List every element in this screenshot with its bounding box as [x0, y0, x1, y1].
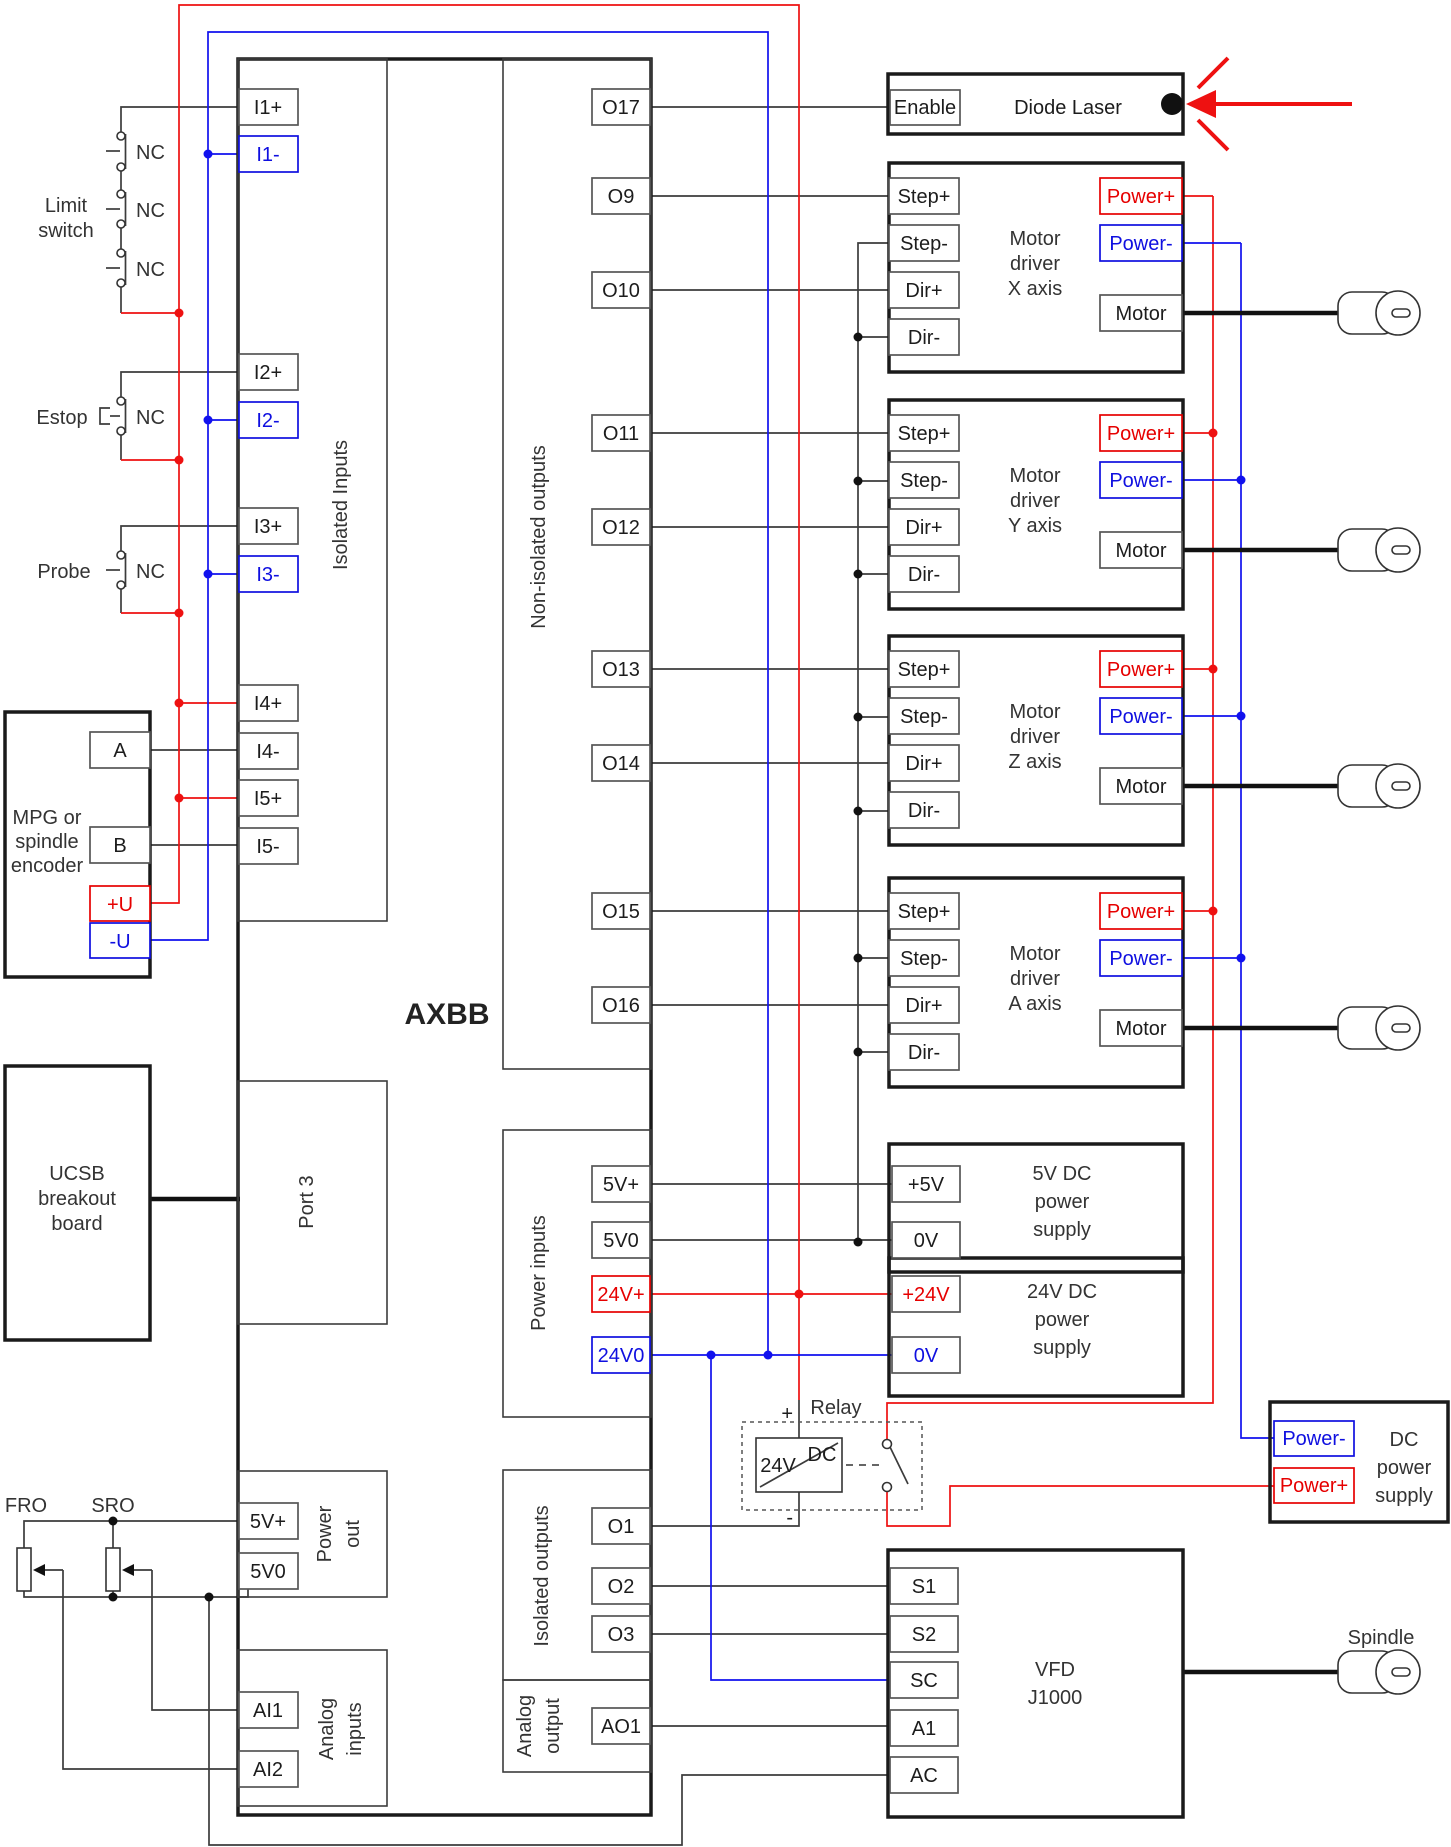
- wire-24v0-sc: [711, 1355, 890, 1680]
- terminal-x-dir-plus: Dir+: [889, 272, 959, 308]
- svg-text:Power-: Power-: [1109, 706, 1172, 728]
- svg-text:0V: 0V: [914, 1345, 939, 1367]
- driver-y-label: Motor: [1009, 465, 1060, 487]
- svg-text:24V+: 24V+: [597, 1284, 644, 1306]
- terminal-24v-supply-plus: +24V: [892, 1276, 960, 1312]
- spindle-motor-symbol: [1338, 1650, 1420, 1694]
- svg-text:B: B: [113, 835, 126, 857]
- motor-a-symbol: [1338, 1006, 1420, 1050]
- estop-label: Estop: [36, 407, 87, 429]
- svg-text:power: power: [1035, 1309, 1090, 1331]
- relay-coil-24v-label: 24V: [760, 1455, 796, 1477]
- svg-text:Power+: Power+: [1107, 659, 1175, 681]
- supply-24v-label: 24V DC: [1027, 1281, 1097, 1303]
- svg-text:encoder: encoder: [11, 855, 84, 877]
- svg-text:I4+: I4+: [254, 693, 282, 715]
- terminal-24v-supply-0v: 0V: [892, 1337, 960, 1373]
- svg-text:5V0: 5V0: [603, 1230, 639, 1252]
- svg-text:O10: O10: [602, 280, 640, 302]
- svg-text:O16: O16: [602, 995, 640, 1017]
- svg-text:I3+: I3+: [254, 516, 282, 538]
- svg-text:spindle: spindle: [15, 831, 78, 853]
- svg-text:O1: O1: [608, 1516, 635, 1538]
- terminal-i4-plus: I4+: [239, 685, 298, 721]
- terminal-z-step-minus: Step-: [889, 698, 959, 734]
- probe-switch-symbol: [106, 551, 126, 589]
- terminal-vfd-ac: AC: [890, 1757, 958, 1793]
- relay-label: Relay: [810, 1397, 861, 1419]
- diagram-svg: I1+ I1- I2+ I2- I3+ I3- I4+ I4- I5+ I5- …: [0, 0, 1451, 1847]
- terminal-y-dir-minus: Dir-: [889, 556, 959, 592]
- terminal-powerin-24v0: 24V0: [592, 1337, 650, 1373]
- terminal-i3-plus: I3+: [239, 508, 298, 544]
- terminal-i3-minus: I3-: [239, 556, 298, 592]
- terminal-z-power-plus: Power+: [1100, 651, 1182, 687]
- terminal-y-motor: Motor: [1100, 532, 1182, 568]
- terminal-z-step-plus: Step+: [889, 651, 959, 687]
- svg-text:supply: supply: [1375, 1485, 1433, 1507]
- svg-text:O15: O15: [602, 901, 640, 923]
- sro-potentiometer: [106, 1548, 134, 1591]
- terminal-mpg-uminus: -U: [90, 923, 150, 958]
- terminal-y-step-plus: Step+: [889, 415, 959, 451]
- relay-coil-dc-label: DC: [808, 1444, 837, 1466]
- svg-text:Enable: Enable: [894, 97, 956, 119]
- terminal-i4-minus: I4-: [239, 733, 298, 769]
- terminal-ai2: AI2: [239, 1751, 298, 1787]
- svg-text:Step+: Step+: [898, 423, 951, 445]
- svg-text:Step-: Step-: [900, 948, 948, 970]
- svg-text:S1: S1: [912, 1576, 936, 1598]
- svg-text:O2: O2: [608, 1576, 635, 1598]
- limit-switch-symbol: [106, 132, 126, 287]
- nc-label-1: NC: [136, 142, 165, 164]
- terminal-x-step-minus: Step-: [889, 225, 959, 261]
- terminal-5v-supply-plus: +5V: [892, 1166, 960, 1202]
- relay-plus-label: +: [781, 1403, 793, 1425]
- spindle-label: Spindle: [1348, 1627, 1415, 1649]
- wire-relay-coil-o1: [650, 1492, 799, 1526]
- terminal-o12: O12: [592, 509, 650, 545]
- terminal-i2-minus: I2-: [239, 402, 298, 438]
- svg-text:Dir-: Dir-: [908, 327, 940, 349]
- terminal-a-step-minus: Step-: [889, 940, 959, 976]
- svg-text:Step-: Step-: [900, 706, 948, 728]
- svg-text:output: output: [542, 1698, 564, 1754]
- terminal-mpg-b: B: [90, 827, 150, 863]
- svg-text:Step-: Step-: [900, 470, 948, 492]
- svg-text:O11: O11: [603, 423, 639, 445]
- terminal-a-step-plus: Step+: [889, 893, 959, 929]
- limit-switch-label: Limit: [45, 195, 88, 217]
- svg-text:AI2: AI2: [253, 1759, 283, 1781]
- svg-text:Step+: Step+: [898, 659, 951, 681]
- svg-text:Power-: Power-: [1109, 233, 1172, 255]
- svg-text:breakout: breakout: [38, 1188, 116, 1210]
- svg-text:J1000: J1000: [1028, 1687, 1083, 1709]
- section-label-power-inputs: Power inputs: [528, 1215, 550, 1331]
- svg-text:5V0: 5V0: [250, 1561, 286, 1583]
- wiring-diagram: I1+ I1- I2+ I2- I3+ I3- I4+ I4- I5+ I5- …: [0, 0, 1451, 1847]
- terminal-i1-plus: I1+: [239, 89, 298, 125]
- terminal-powerin-5v0: 5V0: [592, 1222, 650, 1258]
- terminal-ai1: AI1: [239, 1692, 298, 1728]
- terminal-dcsupply-power-minus: Power-: [1274, 1421, 1354, 1456]
- laser-beam-icon: [1161, 58, 1352, 150]
- svg-text:O13: O13: [602, 659, 640, 681]
- svg-text:Step-: Step-: [900, 233, 948, 255]
- terminal-y-power-plus: Power+: [1100, 415, 1182, 451]
- svg-text:Step+: Step+: [898, 901, 951, 923]
- wiper-arrow-icon: [33, 1564, 45, 1576]
- wire-i2p-estop: [121, 372, 240, 397]
- motor-x-symbol: [1338, 291, 1420, 335]
- terminal-i2-plus: I2+: [239, 354, 298, 390]
- terminal-ao1: AO1: [592, 1708, 650, 1744]
- svg-text:driver: driver: [1010, 968, 1060, 990]
- terminal-a-power-minus: Power-: [1100, 940, 1182, 976]
- terminal-a-power-plus: Power+: [1100, 893, 1182, 929]
- svg-text:O17: O17: [602, 97, 640, 119]
- section-label-port3: Port 3: [296, 1175, 318, 1228]
- terminal-powerin-5vplus: 5V+: [592, 1166, 650, 1202]
- terminal-o15: O15: [592, 893, 650, 929]
- svg-text:SC: SC: [910, 1670, 938, 1692]
- nc-label-2: NC: [136, 200, 165, 222]
- svg-text:I5-: I5-: [256, 836, 279, 858]
- svg-text:A: A: [113, 740, 127, 762]
- svg-text:O3: O3: [608, 1624, 635, 1646]
- svg-text:+5V: +5V: [908, 1174, 945, 1196]
- svg-text:Power-: Power-: [1109, 470, 1172, 492]
- svg-text:X axis: X axis: [1008, 278, 1062, 300]
- svg-text:AC: AC: [910, 1765, 938, 1787]
- contact-icon: [117, 132, 125, 140]
- driver-x-label: Motor: [1009, 228, 1060, 250]
- terminal-5v-supply-0v: 0V: [892, 1222, 960, 1258]
- svg-text:Power+: Power+: [1107, 423, 1175, 445]
- svg-text:Motor: Motor: [1115, 1018, 1166, 1040]
- estop-switch-symbol: [100, 397, 126, 435]
- terminal-vfd-s1: S1: [890, 1568, 958, 1604]
- terminal-o14: O14: [592, 745, 650, 781]
- terminal-o17: O17: [592, 89, 650, 125]
- terminal-a-dir-plus: Dir+: [889, 987, 959, 1023]
- svg-text:power: power: [1035, 1191, 1090, 1213]
- svg-text:Dir-: Dir-: [908, 1042, 940, 1064]
- relay-minus-label: -: [786, 1507, 793, 1529]
- svg-text:+24V: +24V: [902, 1284, 950, 1306]
- wire-relay-switch-out: [887, 1486, 1274, 1526]
- svg-text:Power+: Power+: [1107, 901, 1175, 923]
- svg-text:Y axis: Y axis: [1008, 515, 1062, 537]
- terminal-z-dir-minus: Dir-: [889, 792, 959, 828]
- svg-text:I1+: I1+: [254, 97, 282, 119]
- supply-5v-label: 5V DC: [1033, 1163, 1092, 1185]
- terminal-x-motor: Motor: [1100, 295, 1182, 331]
- terminal-o11: O11: [592, 415, 650, 451]
- fro-potentiometer: [17, 1548, 45, 1591]
- terminal-x-dir-minus: Dir-: [889, 319, 959, 355]
- nc-label-3: NC: [136, 259, 165, 281]
- svg-text:driver: driver: [1010, 253, 1060, 275]
- signal-wires: [24, 107, 892, 1845]
- terminal-laser-enable: Enable: [890, 90, 960, 125]
- terminal-vfd-a1: A1: [890, 1710, 958, 1746]
- svg-text:power: power: [1377, 1457, 1432, 1479]
- svg-text:Dir+: Dir+: [905, 995, 942, 1017]
- svg-text:Dir+: Dir+: [905, 280, 942, 302]
- svg-text:I2-: I2-: [256, 410, 279, 432]
- driver-a-label: Motor: [1009, 943, 1060, 965]
- terminal-y-dir-plus: Dir+: [889, 509, 959, 545]
- svg-text:Dir-: Dir-: [908, 800, 940, 822]
- svg-text:0V: 0V: [914, 1230, 939, 1252]
- terminal-z-power-minus: Power-: [1100, 698, 1182, 734]
- svg-text:O14: O14: [602, 753, 640, 775]
- svg-text:I4-: I4-: [256, 741, 279, 763]
- terminal-dcsupply-power-plus: Power+: [1274, 1468, 1354, 1503]
- svg-text:5V+: 5V+: [603, 1174, 639, 1196]
- terminal-x-power-plus: Power+: [1100, 178, 1182, 214]
- svg-text:Dir+: Dir+: [905, 517, 942, 539]
- terminal-y-step-minus: Step-: [889, 462, 959, 498]
- svg-text:supply: supply: [1033, 1337, 1091, 1359]
- terminal-o10: O10: [592, 272, 650, 308]
- board-title: AXBB: [404, 998, 489, 1031]
- svg-text:AO1: AO1: [601, 1716, 641, 1738]
- motor-y-symbol: [1338, 528, 1420, 572]
- svg-text:Motor: Motor: [1115, 776, 1166, 798]
- svg-text:AI1: AI1: [253, 1700, 283, 1722]
- svg-text:5V+: 5V+: [250, 1511, 286, 1533]
- section-label-isolated-outputs: Isolated outputs: [531, 1505, 553, 1646]
- driver-z-label: Motor: [1009, 701, 1060, 723]
- svg-text:inputs: inputs: [344, 1702, 366, 1755]
- power-negative-wires: [150, 32, 1274, 1680]
- svg-text:S2: S2: [912, 1624, 936, 1646]
- mpg-label: MPG or: [13, 807, 82, 829]
- svg-text:Power+: Power+: [1107, 186, 1175, 208]
- svg-text:I2+: I2+: [254, 362, 282, 384]
- terminal-powerin-24vplus: 24V+: [592, 1276, 650, 1312]
- vfd-label: VFD: [1035, 1659, 1075, 1681]
- probe-label: Probe: [37, 561, 90, 583]
- svg-text:I5+: I5+: [254, 788, 282, 810]
- svg-text:A1: A1: [912, 1718, 936, 1740]
- terminal-powerout-5v0: 5V0: [239, 1553, 298, 1589]
- svg-text:Dir+: Dir+: [905, 753, 942, 775]
- terminal-z-dir-plus: Dir+: [889, 745, 959, 781]
- svg-text:switch: switch: [38, 220, 94, 242]
- svg-text:Motor: Motor: [1115, 303, 1166, 325]
- estop-nc-label: NC: [136, 407, 165, 429]
- svg-text:-U: -U: [109, 931, 130, 953]
- terminal-x-power-minus: Power-: [1100, 225, 1182, 261]
- terminal-o13: O13: [592, 651, 650, 687]
- terminal-a-dir-minus: Dir-: [889, 1034, 959, 1070]
- svg-text:driver: driver: [1010, 490, 1060, 512]
- svg-text:I1-: I1-: [256, 144, 279, 166]
- diode-laser-label: Diode Laser: [1014, 97, 1122, 119]
- terminal-mpg-uplus: +U: [90, 886, 150, 921]
- motor-z-symbol: [1338, 764, 1420, 808]
- probe-nc-label: NC: [136, 561, 165, 583]
- svg-text:Step+: Step+: [898, 186, 951, 208]
- terminal-o3: O3: [592, 1616, 650, 1652]
- wire-i1p-limit: [121, 107, 240, 132]
- svg-text:supply: supply: [1033, 1219, 1091, 1241]
- svg-text:Dir-: Dir-: [908, 564, 940, 586]
- svg-text:+U: +U: [107, 894, 133, 916]
- sro-label: SRO: [91, 1495, 134, 1517]
- svg-text:driver: driver: [1010, 726, 1060, 748]
- wire-5vp-pots: [24, 1521, 240, 1548]
- terminal-mpg-a: A: [90, 732, 150, 768]
- dc-supply-label: DC: [1390, 1429, 1419, 1451]
- ucsb-label: UCSB: [49, 1163, 105, 1185]
- svg-text:A axis: A axis: [1008, 993, 1061, 1015]
- svg-text:O9: O9: [608, 186, 635, 208]
- terminal-o1: O1: [592, 1508, 650, 1544]
- wire-common-return: [858, 243, 889, 1242]
- terminal-z-motor: Motor: [1100, 768, 1182, 804]
- relay-switch-arm: [890, 1447, 908, 1484]
- wire-i3p-probe: [121, 526, 240, 551]
- svg-text:Power+: Power+: [1280, 1475, 1348, 1497]
- wire-5v0-pots: [24, 1589, 248, 1597]
- svg-text:Z axis: Z axis: [1008, 751, 1061, 773]
- terminal-i5-plus: I5+: [239, 780, 298, 816]
- section-label-isolated-inputs: Isolated Inputs: [330, 440, 352, 570]
- wiper-arrow-icon: [122, 1564, 134, 1576]
- svg-text:Power-: Power-: [1109, 948, 1172, 970]
- section-label-analog-output: Analog: [514, 1695, 536, 1757]
- terminal-y-power-minus: Power-: [1100, 462, 1182, 498]
- section-label-power-out: Power: [314, 1505, 336, 1562]
- svg-text:I3-: I3-: [256, 564, 279, 586]
- wire-powm-rail: [1241, 243, 1274, 1438]
- axbb-board-outline: [238, 59, 651, 1815]
- section-label-non-isolated-outputs: Non-isolated outputs: [528, 445, 550, 628]
- svg-text:Motor: Motor: [1115, 540, 1166, 562]
- terminal-o16: O16: [592, 987, 650, 1023]
- terminal-powerout-5vplus: 5V+: [239, 1503, 298, 1539]
- svg-text:O12: O12: [602, 517, 640, 539]
- svg-text:board: board: [51, 1213, 102, 1235]
- estop-plunger-icon: [100, 408, 110, 424]
- fro-label: FRO: [5, 1495, 47, 1517]
- terminal-o9: O9: [592, 178, 650, 214]
- terminal-vfd-s2: S2: [890, 1616, 958, 1652]
- relay-contact-icon: [883, 1483, 892, 1492]
- terminal-vfd-sc: SC: [890, 1662, 958, 1698]
- terminal-x-step-plus: Step+: [889, 178, 959, 214]
- svg-text:Power-: Power-: [1282, 1428, 1345, 1450]
- svg-text:out: out: [342, 1520, 364, 1548]
- terminal-i1-minus: I1-: [239, 136, 298, 172]
- wire-sro-ai1: [152, 1570, 240, 1710]
- terminal-o2: O2: [592, 1568, 650, 1604]
- thick-wires: [150, 313, 1342, 1672]
- svg-text:24V0: 24V0: [598, 1345, 645, 1367]
- terminal-a-motor: Motor: [1100, 1010, 1182, 1046]
- relay-contact-icon: [883, 1440, 892, 1449]
- section-label-analog-inputs: Analog: [316, 1698, 338, 1760]
- terminal-i5-minus: I5-: [239, 828, 298, 864]
